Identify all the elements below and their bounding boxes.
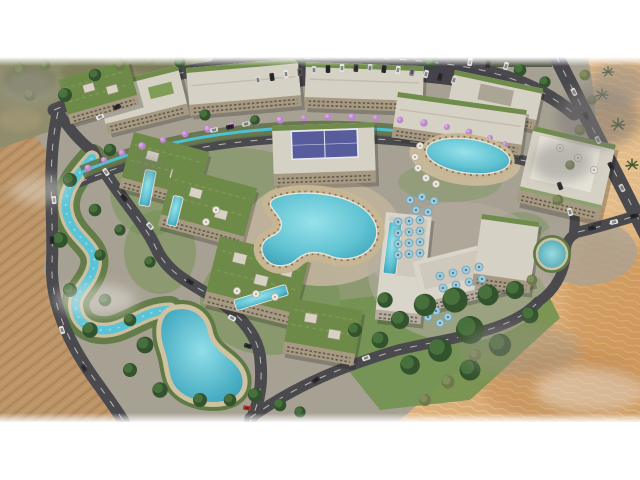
round-pond	[533, 235, 571, 273]
top-fade	[0, 57, 640, 66]
render-content	[0, 53, 640, 423]
render-viewport: Aerial dusk rendering of a desert resort…	[0, 0, 640, 480]
bottom-fade	[0, 413, 640, 423]
white-band-top	[0, 0, 640, 57]
building-padel	[272, 122, 379, 190]
aerial-masterplan-render	[0, 0, 640, 480]
main-pool	[262, 193, 377, 266]
white-band-bottom	[0, 422, 640, 480]
